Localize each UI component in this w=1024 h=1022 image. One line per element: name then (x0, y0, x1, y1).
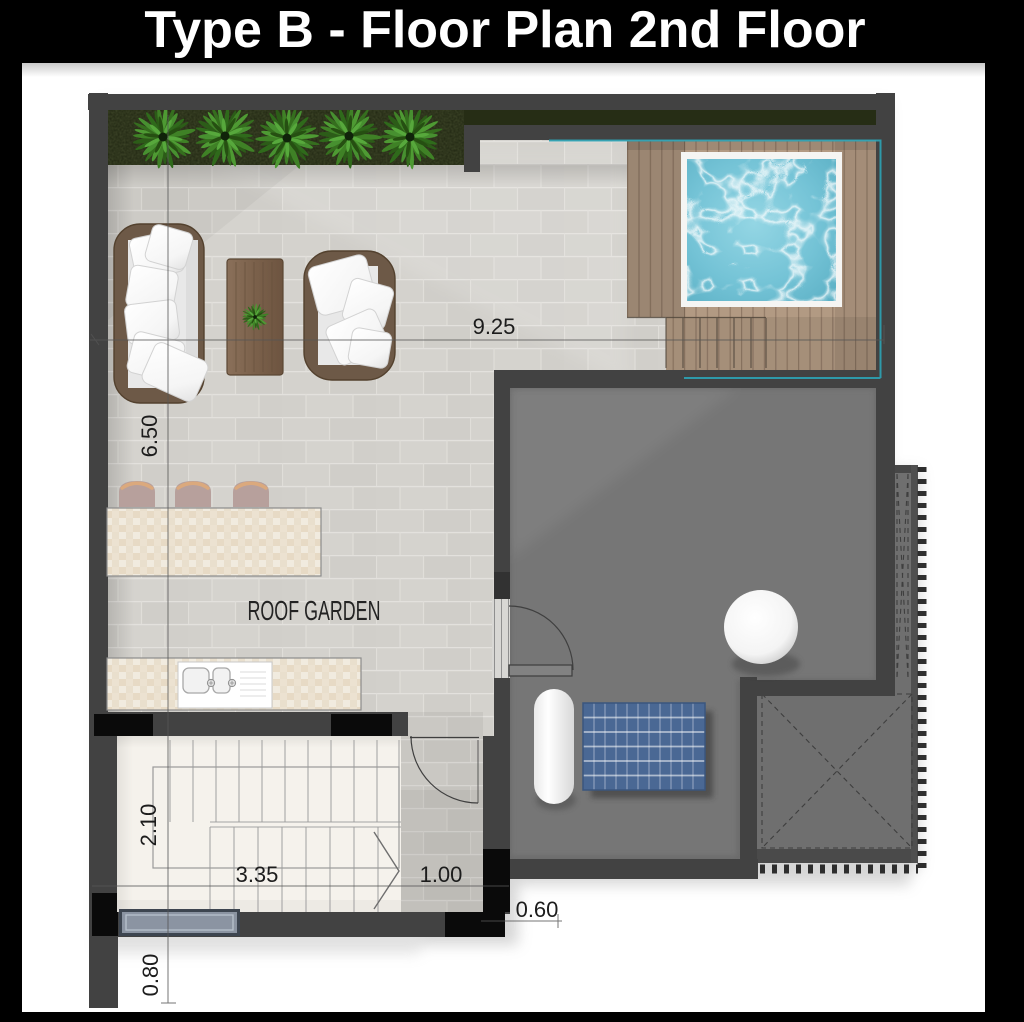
svg-text:2.10: 2.10 (136, 804, 161, 847)
svg-text:3.35: 3.35 (236, 862, 279, 887)
svg-text:1.00: 1.00 (420, 862, 463, 887)
svg-text:6.50: 6.50 (137, 415, 162, 458)
svg-text:Type B - Floor Plan 2nd Floor: Type B - Floor Plan 2nd Floor (144, 1, 865, 59)
svg-text:ROOF GARDEN: ROOF GARDEN (248, 595, 381, 626)
svg-text:0.80: 0.80 (138, 954, 163, 997)
svg-text:9.25: 9.25 (473, 314, 516, 339)
svg-text:0.60: 0.60 (516, 897, 559, 922)
